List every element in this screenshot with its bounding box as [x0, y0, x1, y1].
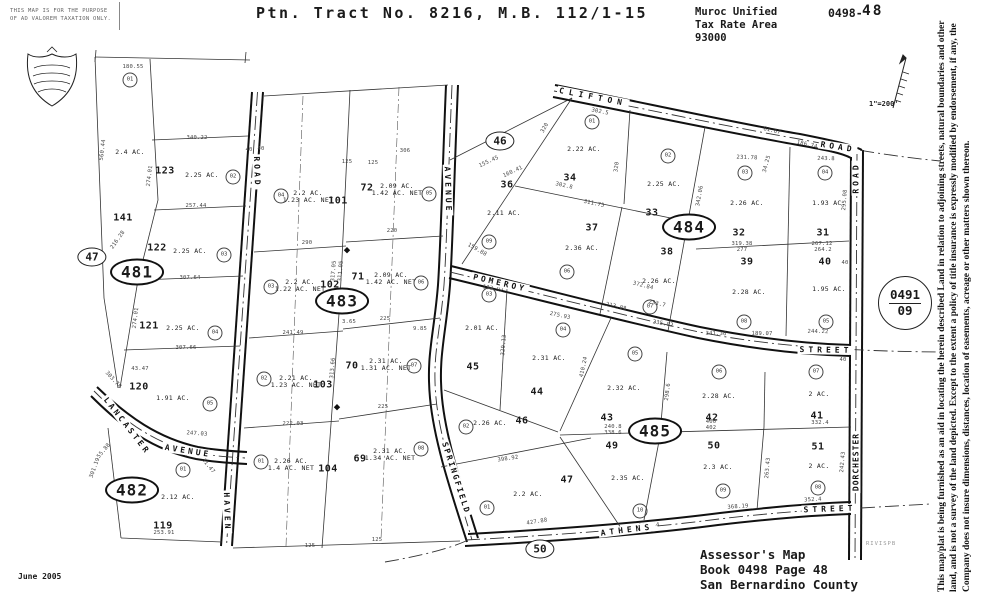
parcel-index-circle: 04 — [818, 166, 833, 181]
parcel-acreage: 1.95 AC. — [812, 285, 846, 293]
dimension-label: 9.85 — [413, 326, 427, 332]
parcel-net-acreage: 1.23 AC. NET — [283, 196, 334, 204]
dimension-label: 342.06 — [695, 185, 705, 207]
street-label-springfield: SPRINGFIELD — [440, 439, 473, 517]
dimension-label: 3.65 — [342, 319, 356, 325]
dimension-label: 402 — [706, 425, 717, 431]
dimension-label: 243.8 — [817, 156, 835, 162]
parcel-acreage: 2.31 AC. — [532, 354, 566, 362]
parcel-index-circle: 03 — [264, 280, 279, 295]
parcel-number: 38 — [660, 247, 673, 258]
parcel-number: 44 — [530, 387, 543, 398]
dimension-label: 332.4 — [811, 420, 829, 426]
parcel-number: 45 — [466, 362, 479, 373]
parcel-net-acreage: 1.23 AC. NET — [271, 381, 322, 389]
parcel-number: 70 — [345, 361, 358, 372]
dimension-label: 186.74 — [796, 140, 818, 151]
dimension-label: 216.28 — [109, 230, 126, 251]
parcel-acreage: 2.32 AC. — [607, 384, 641, 392]
dimension-label: 241.49 — [282, 330, 303, 336]
dimension-label: 155.45 — [478, 155, 500, 169]
parcel-number: 34 — [563, 173, 576, 184]
parcel-index-circle: 02 — [226, 170, 241, 185]
dimension-label: 275.93 — [549, 311, 571, 321]
parcel-acreage: 2.01 AC. — [465, 324, 499, 332]
parcel-index-circle: 01 — [585, 115, 600, 130]
street-label-avenue: AVENUE — [443, 164, 454, 215]
dimension-label: 220 — [387, 228, 398, 234]
parcel-net-acreage: 1.42 AC. NET — [366, 278, 417, 286]
dimension-label: 40 — [257, 146, 264, 152]
parcel-acreage: 2.28 AC. — [702, 392, 736, 400]
dimension-label: 352.4 — [804, 497, 822, 504]
dimension-label: 125 — [342, 159, 353, 165]
parcel-number: 121 — [139, 321, 159, 332]
dimension-label: 338.6 — [604, 430, 622, 436]
dimension-label: 320 — [540, 122, 550, 134]
dimension-label: 160.41 — [502, 165, 524, 179]
dimension-label: 247.03 — [186, 430, 207, 437]
parcel-acreage: 2.3 AC. — [703, 463, 733, 471]
street-label-road: ROAD — [852, 160, 861, 195]
parcel-index-circle: 03 — [738, 166, 753, 181]
block-number-ellipse: 482 — [105, 477, 159, 504]
parcel-index-circle: 04 — [556, 323, 571, 338]
parcel-number: 71 — [351, 272, 364, 283]
street-label-road: ROAD — [252, 154, 262, 190]
parcel-index-circle: 07 — [809, 365, 824, 380]
dimension-label: 307.64 — [179, 275, 200, 281]
dimension-label: 277 — [737, 247, 748, 253]
dimension-label: 225 — [378, 404, 389, 410]
dimension-label: 341.36 — [705, 331, 726, 337]
street-label-clifton: CLIFTON — [556, 86, 629, 109]
dimension-label: 313.66 — [329, 357, 337, 379]
parcel-index-circle: 02 — [661, 149, 676, 164]
parcel-acreage: 2.36 AC. — [565, 244, 599, 252]
street-label-street: STREET — [801, 504, 858, 515]
dimension-label: 125 — [368, 160, 379, 166]
dimension-label: 398.92 — [497, 455, 519, 464]
parcel-index-circle: 07 — [407, 359, 422, 374]
dimension-label: 222.03 — [282, 421, 303, 427]
adjacent-page-ref-ellipse: 50 — [525, 540, 554, 559]
parcel-index-circle: 10 — [633, 504, 648, 519]
parcel-number: 141 — [113, 213, 133, 224]
parcel-net-acreage: 1.31 AC. NET — [361, 364, 412, 372]
parcel-index-circle: 09 — [482, 235, 497, 250]
parcel-number: 32 — [732, 228, 745, 239]
parcel-number: 36 — [500, 180, 513, 191]
parcel-index-circle: 08 — [737, 315, 752, 330]
parcel-number: 46 — [515, 416, 528, 427]
parcel-net-acreage: 1.22 AC. NET — [275, 285, 326, 293]
dimension-label: 40 — [245, 147, 252, 153]
parcel-number: 120 — [129, 382, 149, 393]
dimension-label: 311.75 — [583, 199, 605, 209]
parcel-index-circle: 05 — [819, 315, 834, 330]
street-label-athens: ATHENS — [598, 522, 656, 538]
parcel-index-circle: 05 — [422, 187, 437, 202]
parcel-number: 104 — [318, 464, 338, 475]
parcel-number: 47 — [560, 475, 573, 486]
parcel-acreage: 2.26 AC. — [730, 199, 764, 207]
parcel-index-circle: 03 — [217, 248, 232, 263]
dimension-label: 125 — [372, 537, 383, 543]
dimension-label: 274.01 — [146, 165, 155, 187]
block-number-ellipse: 484 — [662, 214, 716, 241]
parcel-number: 51 — [811, 442, 824, 453]
parcel-index-circle: 01 — [254, 455, 269, 470]
parcel-acreage: 1.91 AC. — [156, 394, 190, 402]
parcel-acreage: 2 AC. — [808, 462, 829, 470]
dimension-label: 311.05 — [337, 260, 345, 282]
dimension-label: 40 — [841, 260, 848, 266]
parcel-index-circle: 02 — [459, 420, 474, 435]
parcel-acreage: 2.2 AC. — [513, 490, 543, 498]
dimension-label: 231.78 — [736, 155, 757, 162]
street-label-road: ROAD — [818, 139, 858, 154]
parcel-number: 49 — [605, 441, 618, 452]
dimension-label: 263.43 — [764, 457, 772, 479]
parcel-acreage: 2.11 AC. — [487, 209, 521, 217]
dimension-label: 40 — [839, 357, 846, 363]
parcel-number: 40 — [818, 257, 831, 268]
street-label-street: STREET — [797, 345, 854, 355]
parcel-index-circle: 02 — [257, 372, 272, 387]
parcel-number: 43 — [600, 413, 613, 424]
parcel-index-circle: 05 — [203, 397, 218, 412]
dimension-label: 264.2 — [814, 247, 832, 253]
dimension-label: 306 — [400, 148, 411, 154]
street-label-dorchester: DORCHESTER — [852, 431, 861, 493]
parcel-number: 33 — [645, 208, 658, 219]
adjacent-page-ref-ellipse: 47 — [77, 248, 106, 267]
adjacent-page-ref-ellipse: 46 — [485, 132, 514, 151]
block-number-ellipse: 483 — [315, 288, 369, 315]
parcel-acreage: 2.35 AC. — [611, 474, 645, 482]
dimension-label: 244.22 — [807, 329, 828, 335]
dimension-label: 43.47 — [131, 366, 149, 372]
parcel-index-circle: 04 — [274, 189, 289, 204]
parcel-acreage: 2.28 AC. — [732, 288, 766, 296]
dimension-label: 427.88 — [526, 517, 548, 526]
dimension-label: 290 — [302, 240, 313, 246]
dimension-label: 34.25 — [762, 155, 772, 174]
dimension-label: 329.13 — [500, 334, 508, 356]
parcel-acreage: 2.22 AC. — [567, 145, 601, 153]
dimension-label: 125 — [305, 543, 316, 549]
parcel-index-circle: 01 — [480, 501, 495, 516]
dimension-label: 295.08 — [841, 189, 849, 211]
dimension-label: 189.07 — [751, 331, 772, 337]
dimension-label: 225 — [380, 316, 391, 322]
parcel-index-circle: 08 — [811, 481, 826, 496]
dimension-label: 560.44 — [99, 139, 108, 161]
parcel-index-circle: 06 — [560, 265, 575, 280]
parcel-net-acreage: 1.42 AC. NET — [372, 189, 423, 197]
parcel-index-circle: 08 — [414, 442, 429, 457]
dimension-label: 303.78 — [104, 370, 123, 390]
parcel-net-acreage: 1.34 AC. NET — [365, 454, 416, 462]
parcel-number: 37 — [585, 223, 598, 234]
street-label-haven: HAVEN — [222, 490, 232, 533]
parcel-acreage: 2.25 AC. — [166, 324, 200, 332]
dimension-label: 301.19 — [89, 457, 102, 479]
dimension-label: 213.08 — [605, 302, 627, 313]
block-number-ellipse: 481 — [110, 259, 164, 286]
parcel-acreage: 2.25 AC. — [185, 171, 219, 179]
dimension-label: 320 — [613, 161, 620, 172]
parcel-index-circle: 01 — [123, 73, 138, 88]
parcel-acreage: 2.25 AC. — [647, 180, 681, 188]
parcel-acreage: 2.25 AC. — [173, 247, 207, 255]
parcel-acreage: 2 AC. — [808, 390, 829, 398]
dimension-label: 31.47 — [200, 457, 216, 475]
parcel-index-circle: 04 — [208, 326, 223, 341]
assessor-map-page: { "header": { "notice": "THIS MAP IS FOR… — [0, 0, 991, 596]
parcel-index-circle: 09 — [716, 484, 731, 499]
dimension-label: 340.22 — [186, 135, 207, 141]
parcel-acreage: 2.4 AC. — [115, 148, 145, 156]
dimension-label: 81.67 — [763, 126, 781, 136]
parcel-index-circle: 01 — [176, 463, 191, 478]
parcel-number: 122 — [147, 243, 167, 254]
dimension-label: 235.02 — [652, 319, 674, 329]
parcel-number: 31 — [816, 228, 829, 239]
parcel-acreage: 2.12 AC. — [161, 493, 195, 501]
dimension-label: 253.91 — [153, 530, 174, 536]
dimension-label: 257.44 — [185, 203, 206, 209]
dimension-label: 55.88 — [96, 442, 112, 459]
parcel-index-circle: 06 — [414, 276, 429, 291]
dimension-label: 368.19 — [727, 503, 748, 510]
map-labels-layer: 1412.4 AC.011232.25 AC.021222.25 AC.0312… — [0, 0, 991, 596]
parcel-number: 50 — [707, 441, 720, 452]
dimension-label: 410.24 — [579, 356, 589, 378]
parcel-index-circle: 05 — [628, 347, 643, 362]
parcel-number: 39 — [740, 257, 753, 268]
parcel-acreage: 2.26 AC. — [473, 419, 507, 427]
dimension-label: 242.43 — [839, 451, 847, 473]
dimension-label: 180.55 — [122, 64, 143, 70]
parcel-number: 123 — [155, 166, 175, 177]
parcel-net-acreage: 1.4 AC. NET — [268, 464, 314, 472]
block-number-ellipse: 485 — [628, 418, 682, 445]
parcel-index-circle: 06 — [712, 365, 727, 380]
dimension-label: 298.6 — [664, 383, 672, 401]
dimension-label: 307.66 — [175, 345, 196, 351]
